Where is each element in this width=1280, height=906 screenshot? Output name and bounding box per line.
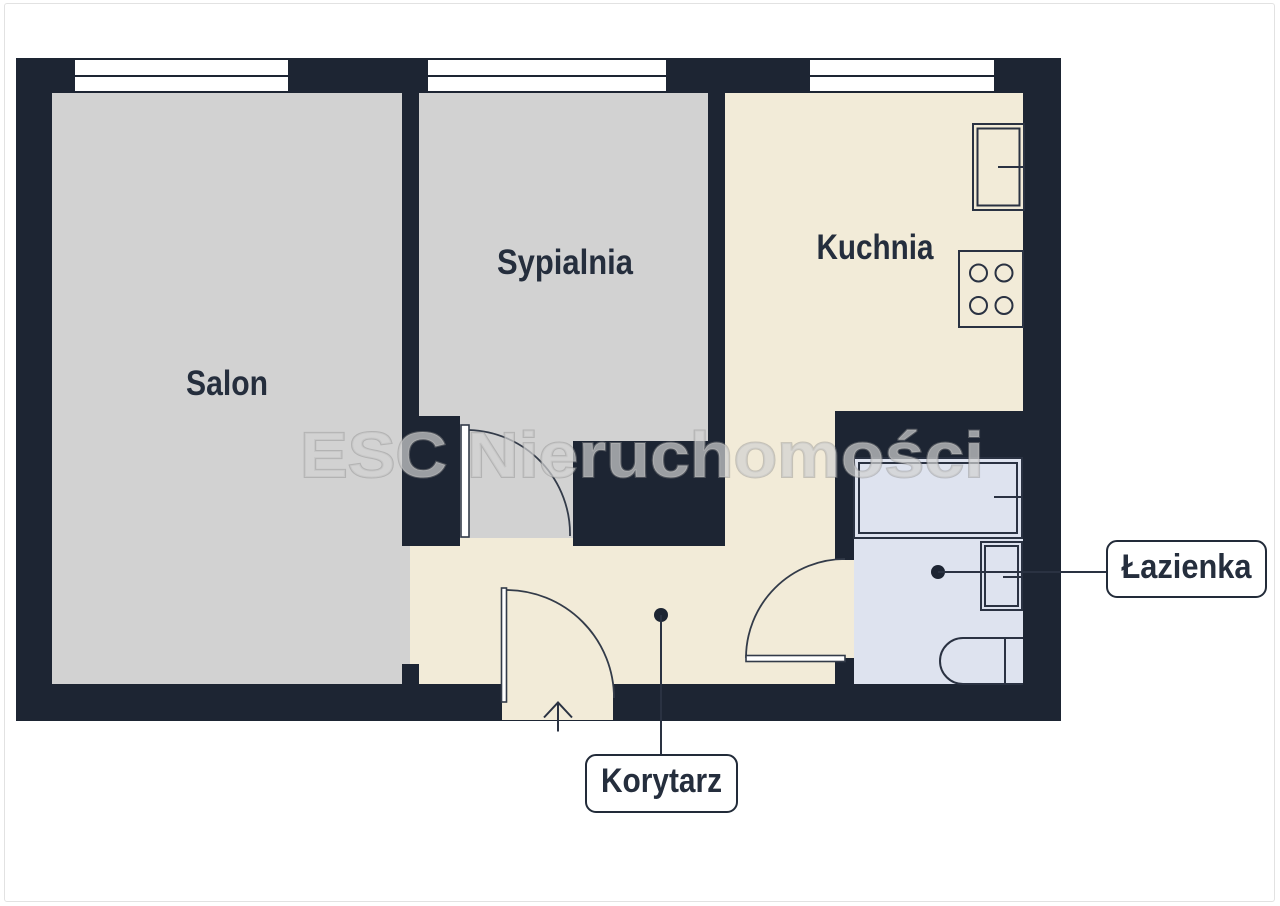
svg-text:ESC Nieruchomości: ESC Nieruchomości — [300, 419, 984, 491]
svg-text:Kuchnia: Kuchnia — [817, 228, 934, 267]
svg-text:Sypialnia: Sypialnia — [497, 243, 633, 282]
svg-text:Korytarz: Korytarz — [601, 762, 722, 800]
svg-text:Łazienka: Łazienka — [1122, 548, 1253, 586]
svg-text:Salon: Salon — [186, 364, 268, 403]
